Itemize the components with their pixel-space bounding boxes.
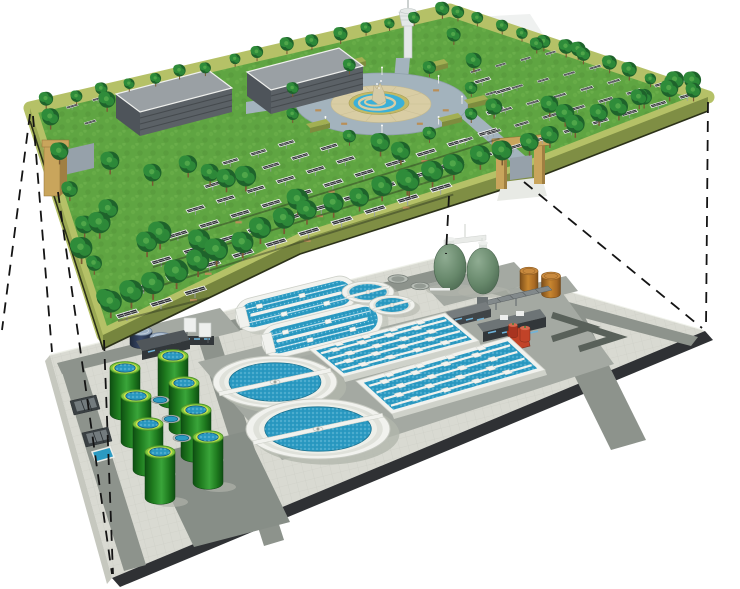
tree-highlight: [330, 199, 336, 205]
tree-highlight: [185, 161, 190, 166]
tree-highlight: [534, 41, 538, 45]
tree-highlight: [636, 94, 641, 99]
lamp-head: [381, 67, 383, 69]
tree-highlight: [689, 76, 694, 81]
tree-highlight: [233, 57, 236, 60]
tree-highlight: [77, 243, 84, 250]
egg-digester: [467, 248, 499, 294]
tree-highlight: [212, 245, 219, 252]
tree-highlight: [105, 205, 111, 211]
water-texture: [174, 379, 194, 387]
gate-pillar-side: [542, 142, 545, 184]
tree-highlight: [388, 21, 391, 24]
bench: [341, 123, 347, 125]
water-texture: [198, 433, 218, 441]
tree-highlight: [347, 63, 351, 67]
tree-highlight: [451, 32, 455, 36]
tree-highlight: [43, 96, 47, 100]
tree-highlight: [546, 101, 551, 106]
valve: [512, 323, 514, 325]
tree-highlight: [498, 146, 504, 152]
tree-highlight: [294, 195, 300, 201]
tree-highlight: [648, 77, 651, 80]
bench: [235, 221, 241, 223]
projection-dashed-line: [2, 114, 30, 330]
covered-circular-tank-lid: [414, 283, 426, 288]
tree-highlight: [428, 167, 434, 173]
tree-highlight: [572, 120, 578, 126]
fountain-spray: [376, 83, 378, 85]
manhole-water: [164, 416, 178, 422]
tree-highlight: [177, 68, 181, 72]
bench: [433, 89, 439, 91]
tree-highlight: [500, 23, 504, 27]
tree-highlight: [581, 51, 585, 55]
tree-highlight: [469, 111, 473, 115]
hub-center: [274, 381, 277, 384]
tree-highlight: [99, 86, 103, 90]
bench: [443, 109, 449, 111]
pump-cylinder: [520, 328, 530, 342]
tree-highlight: [309, 38, 313, 42]
hub-center: [317, 428, 320, 431]
tree-highlight: [238, 238, 244, 244]
projection-dashed-line: [706, 102, 708, 328]
tree-highlight: [194, 256, 201, 263]
tree-highlight: [127, 287, 134, 294]
water-texture: [163, 352, 183, 360]
railing: [430, 288, 450, 291]
tree-highlight: [127, 82, 130, 85]
tree-highlight: [615, 103, 620, 108]
tree-highlight: [596, 109, 601, 114]
tree-highlight: [290, 86, 294, 90]
tree-highlight: [471, 57, 476, 62]
tree-highlight: [207, 169, 212, 174]
tree-highlight: [242, 172, 248, 178]
covered-circular-tank-lid: [391, 276, 404, 282]
water-texture: [150, 448, 170, 456]
fountain-spray: [378, 87, 380, 89]
tree-highlight: [91, 260, 96, 265]
tree-highlight: [172, 266, 179, 273]
tree-highlight: [256, 224, 262, 230]
rooftop-unit: [516, 311, 524, 316]
tree-highlight: [154, 76, 157, 79]
tree-highlight: [303, 206, 309, 212]
tree-highlight: [107, 157, 113, 163]
hopper-equipment: [184, 318, 196, 332]
tree-highlight: [626, 66, 630, 70]
tree-highlight: [476, 151, 482, 157]
tree-highlight: [95, 218, 101, 224]
tree-highlight: [47, 113, 52, 118]
tree-highlight: [563, 44, 567, 48]
tree-highlight: [203, 66, 206, 69]
tree-highlight: [347, 134, 351, 138]
tree-highlight: [666, 85, 671, 90]
bench: [417, 123, 423, 125]
tree-highlight: [364, 25, 367, 28]
tree-highlight: [284, 41, 288, 45]
tree-highlight: [412, 15, 415, 18]
tree-highlight: [475, 15, 478, 18]
water-texture: [126, 392, 146, 400]
egg-digester-cap-top: [478, 241, 488, 245]
pump-cylinder: [509, 325, 518, 338]
tree-highlight: [223, 174, 229, 180]
tree-highlight: [450, 160, 456, 166]
tree-highlight: [280, 214, 286, 220]
tree-highlight: [356, 193, 362, 199]
water-texture: [138, 420, 158, 428]
illustration-canvas: [0, 0, 740, 589]
rooftop-unit: [500, 315, 508, 320]
tree-highlight: [405, 177, 411, 183]
hopper-equipment: [199, 323, 211, 337]
tree-highlight: [377, 139, 383, 145]
tree-highlight: [156, 228, 163, 235]
bench: [315, 109, 321, 111]
tree-highlight: [546, 131, 551, 136]
water-texture: [115, 364, 135, 372]
lamp-head: [381, 125, 383, 127]
tree-highlight: [56, 148, 61, 153]
lamp-head: [324, 116, 326, 118]
manhole-water: [153, 397, 167, 403]
tree-highlight: [149, 279, 156, 286]
tree-highlight: [456, 10, 460, 14]
tree-highlight: [469, 86, 473, 90]
scene-illustration: [0, 0, 740, 589]
green-digester-tank: [193, 437, 223, 489]
tree-highlight: [74, 94, 77, 97]
tree-highlight: [149, 169, 154, 174]
fountain-spray: [380, 80, 382, 82]
tree-highlight: [491, 103, 496, 108]
tree-highlight: [81, 221, 86, 226]
tree-highlight: [255, 50, 259, 54]
tree-highlight: [378, 182, 384, 188]
lamp-head: [438, 75, 440, 77]
bench: [205, 273, 212, 275]
manhole-water: [175, 435, 189, 441]
tree-highlight: [427, 131, 431, 135]
tree-highlight: [520, 31, 523, 34]
tree-highlight: [104, 96, 109, 101]
tree-highlight: [440, 6, 444, 10]
bridge-hub: [366, 290, 370, 294]
observation-tower-shaft: [404, 24, 412, 58]
tree-highlight: [338, 31, 342, 35]
tree-highlight: [691, 87, 695, 91]
tree-highlight: [106, 297, 113, 304]
gate-wall: [510, 155, 532, 180]
water-texture: [186, 406, 206, 414]
egg-digester: [434, 244, 466, 290]
bridge-hub: [390, 303, 394, 307]
tree-highlight: [67, 186, 72, 191]
valve: [524, 326, 526, 328]
tree-highlight: [143, 238, 149, 244]
tree-highlight: [397, 147, 403, 153]
tree-highlight: [607, 60, 611, 64]
tree-highlight: [526, 138, 531, 143]
tree-highlight: [427, 65, 431, 69]
tree-highlight: [195, 236, 201, 242]
lamp-head: [461, 96, 463, 98]
tree-highlight: [290, 112, 294, 116]
green-digester-tank: [145, 452, 175, 504]
tree-highlight: [562, 109, 567, 114]
